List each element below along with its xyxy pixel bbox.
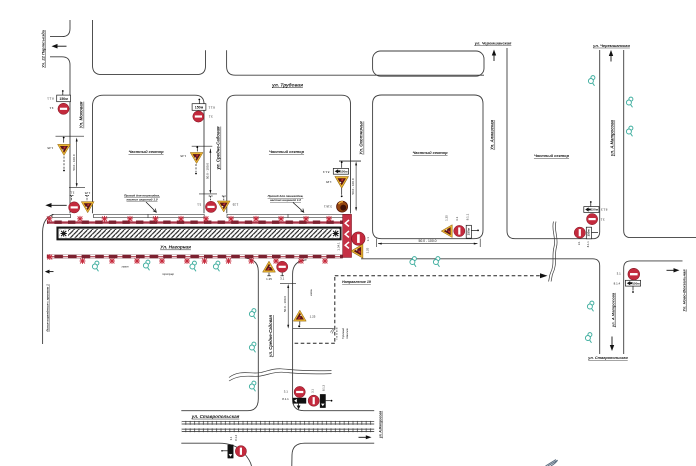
svg-text:50.0 - 100.0: 50.0 - 100.0	[283, 296, 287, 312]
svg-text:ул. Ставропольская: ул. Ставропольская	[191, 414, 240, 419]
svg-text:павильон: павильон	[346, 328, 349, 339]
svg-text:Ул. Ново-Вокзальная: Ул. Ново-Вокзальная	[682, 269, 687, 312]
svg-text:3.16.1: 3.16.1	[324, 204, 332, 208]
svg-text:150м: 150м	[467, 227, 471, 235]
svg-text:1.25: 1.25	[310, 315, 316, 319]
svg-text:Частный сектор: Частный сектор	[534, 153, 570, 158]
svg-text:8.1.1: 8.1.1	[586, 241, 590, 247]
svg-text:Линия ограждения с проемом 1: Линия ограждения с проемом 1	[45, 284, 49, 333]
svg-text:Частный сектор: Частный сектор	[269, 149, 305, 154]
svg-text:8.1.1: 8.1.1	[47, 97, 54, 101]
svg-text:ул. А.Матросова: ул. А.Матросова	[379, 411, 383, 440]
svg-text:50.0 - 100.0: 50.0 - 100.0	[418, 239, 436, 243]
svg-text:1.25: 1.25	[326, 180, 332, 184]
svg-text:Ул. 22 Партсъезда: Ул. 22 Партсъезда	[41, 29, 46, 68]
svg-text:тротуар: тротуар	[162, 273, 174, 276]
svg-text:ул. Черемшанская: ул. Черемшанская	[592, 43, 630, 48]
svg-text:Направление 19: Направление 19	[342, 280, 371, 284]
svg-text:1.25: 1.25	[47, 146, 53, 150]
svg-text:50.0 - 100.0: 50.0 - 100.0	[351, 178, 355, 194]
svg-text:1.25: 1.25	[232, 203, 238, 207]
svg-text:3.1: 3.1	[577, 241, 581, 245]
svg-text:3.1: 3.1	[70, 191, 74, 195]
svg-text:8.1.3: 8.1.3	[601, 208, 608, 212]
svg-text:3.1: 3.1	[600, 217, 604, 221]
svg-text:Ул. Алмазская: Ул. Алмазская	[490, 119, 495, 150]
svg-text:8.1.1: 8.1.1	[208, 106, 215, 110]
svg-text:ул. А.Матросова: ул. А.Матросова	[610, 119, 615, 157]
svg-text:настил шириной 1.0: настил шириной 1.0	[127, 198, 158, 202]
svg-text:8.1.4: 8.1.4	[614, 281, 621, 285]
svg-text:Частный сектор: Частный сектор	[412, 150, 448, 155]
svg-text:1.25: 1.25	[266, 277, 272, 281]
svg-text:1.25: 1.25	[365, 247, 369, 253]
svg-text:1.25: 1.25	[180, 154, 186, 158]
svg-text:3.1: 3.1	[311, 389, 315, 393]
svg-text:газон: газон	[310, 289, 313, 296]
svg-text:8.1.3: 8.1.3	[323, 170, 330, 174]
svg-text:ул. Черемшанская: ул. Черемшанская	[474, 41, 512, 46]
svg-text:Ул. Нагорная: Ул. Нагорная	[160, 245, 191, 250]
svg-text:3.1: 3.1	[617, 272, 621, 276]
svg-text:3.1: 3.1	[229, 436, 233, 440]
svg-text:1.34.1: 1.34.1	[336, 242, 340, 251]
svg-text:1.25: 1.25	[84, 191, 90, 195]
svg-text:3.1: 3.1	[280, 277, 284, 281]
svg-text:ул. А.Матросова: ул. А.Матросова	[611, 292, 616, 328]
svg-text:Ул. Моховая: Ул. Моховая	[79, 101, 84, 128]
svg-text:8.1.1: 8.1.1	[282, 397, 289, 401]
svg-text:50.0 - 100.0: 50.0 - 100.0	[205, 163, 209, 179]
svg-text:3.1: 3.1	[284, 389, 288, 393]
svg-text:150м: 150м	[587, 230, 591, 237]
svg-text:ул. Трудовая: ул. Трудовая	[271, 83, 303, 89]
svg-text:3.1: 3.1	[455, 216, 459, 220]
svg-text:ул. Средне-Садовая: ул. Средне-Садовая	[216, 126, 221, 171]
svg-text:ул. Средне-Садовая: ул. Средне-Садовая	[268, 314, 273, 357]
svg-text:3.1: 3.1	[49, 106, 53, 110]
svg-text:Частный сектор: Частный сектор	[128, 149, 164, 154]
svg-text:ул. Ставропольская: ул. Ставропольская	[587, 356, 628, 360]
svg-text:газон: газон	[122, 266, 129, 269]
svg-text:Ул. Охотничья: Ул. Охотничья	[359, 121, 364, 155]
svg-text:8.1.4: 8.1.4	[234, 434, 238, 440]
svg-text:настил шириной 1.0: настил шириной 1.0	[270, 198, 301, 202]
svg-text:Торговый: Торговый	[342, 327, 345, 339]
svg-text:3.1: 3.1	[197, 203, 201, 207]
svg-text:1.25: 1.25	[445, 215, 449, 221]
svg-text:3.1: 3.1	[208, 114, 212, 118]
svg-text:8.1.1: 8.1.1	[465, 213, 469, 220]
svg-text:8.1.3: 8.1.3	[321, 385, 325, 391]
svg-text:50.0 - 100.0: 50.0 - 100.0	[72, 154, 76, 170]
svg-text:3.1: 3.1	[366, 237, 370, 241]
